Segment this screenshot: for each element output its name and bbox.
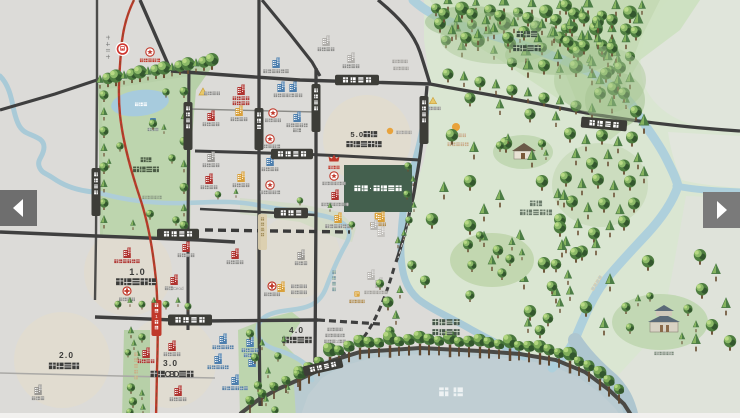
- svg-text:0: 0: [359, 130, 363, 139]
- svg-text:1: 1: [129, 267, 134, 277]
- svg-text:.: .: [356, 130, 358, 139]
- svg-text:0: 0: [140, 267, 145, 277]
- svg-text:.: .: [136, 267, 139, 277]
- svg-text:0: 0: [172, 358, 177, 368]
- svg-text:d: d: [181, 286, 184, 291]
- svg-text:0: 0: [68, 350, 73, 360]
- svg-text:2: 2: [59, 350, 64, 360]
- svg-text:.: .: [169, 358, 171, 368]
- svg-text:3: 3: [163, 358, 168, 368]
- svg-text:0: 0: [298, 325, 303, 335]
- svg-text:D: D: [174, 370, 180, 379]
- svg-text:·: ·: [369, 184, 371, 193]
- svg-text:.: .: [65, 350, 67, 360]
- svg-text:4: 4: [289, 325, 294, 335]
- svg-text:.: .: [295, 325, 297, 335]
